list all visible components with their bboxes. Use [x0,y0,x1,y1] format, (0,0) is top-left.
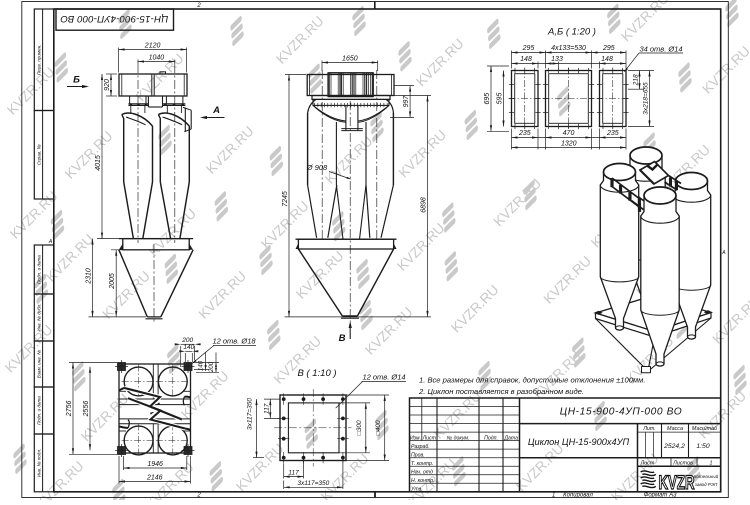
svg-text:□300: □300 [356,420,363,435]
svg-text:295: 295 [522,45,535,52]
svg-text:1. Все размеры для справок, до: 1. Все размеры для справок, допустимые о… [419,376,645,385]
svg-text:Котельный: Котельный [694,473,719,479]
svg-text:Разраб.: Разраб. [411,444,430,450]
svg-text:1320: 1320 [561,140,577,147]
svg-text:А: А [721,250,726,256]
svg-text:Н. контр.: Н. контр. [411,478,434,484]
svg-text:2756: 2756 [66,401,73,418]
svg-text:235: 235 [606,130,619,137]
svg-text:3x218=655: 3x218=655 [643,82,650,115]
svg-text:Подп.: Подп. [484,435,498,441]
svg-text:В ( 1:10 ): В ( 1:10 ) [297,368,336,379]
svg-text:140: 140 [183,344,194,351]
svg-text:920: 920 [104,79,111,91]
svg-text:2120: 2120 [144,42,161,49]
svg-text:Масштаб: Масштаб [692,426,718,432]
svg-text:12 отв. Ø18: 12 отв. Ø18 [212,337,256,346]
svg-text:117: 117 [288,469,299,476]
svg-text:200: 200 [208,361,215,373]
svg-text:Лит.: Лит. [642,426,656,432]
svg-text:Взам. инв. №: Взам. инв. № [36,350,41,378]
svg-text:А: А [212,105,220,116]
svg-text:117: 117 [263,403,270,414]
svg-text:Изм.: Изм. [410,435,421,441]
svg-text:ЦН-15-900-4УП-000 ВО: ЦН-15-900-4УП-000 ВО [560,407,683,418]
svg-text:В: В [339,333,346,344]
svg-text:KVZR: KVZR [659,472,695,494]
svg-text:2: 2 [196,493,201,499]
svg-text:34 отв. Ø14: 34 отв. Ø14 [639,45,682,54]
svg-text:Инв. № дубл.: Инв. № дубл. [36,303,41,331]
svg-text:148: 148 [601,56,613,63]
svg-text:1040: 1040 [149,54,165,61]
svg-text:12 отв. Ø14: 12 отв. Ø14 [362,373,405,382]
svg-text:Лист: Лист [640,460,655,466]
svg-text:133: 133 [551,56,563,63]
svg-text:Перв. примен.: Перв. примен. [36,44,41,75]
svg-text:148: 148 [520,56,532,63]
svg-text:6898: 6898 [421,197,428,213]
svg-text:Лист: Лист [422,435,437,441]
svg-text:235: 235 [518,130,531,137]
svg-text:595: 595 [497,93,504,105]
svg-text:1: 1 [710,460,713,466]
svg-text:2556: 2556 [83,401,90,418]
svg-text:1946: 1946 [147,461,163,468]
svg-text:1650: 1650 [342,55,358,62]
svg-text:4015: 4015 [95,155,102,171]
svg-text:А: А [48,239,53,245]
svg-text:2524,2: 2524,2 [663,443,685,450]
svg-text:Нач. отд: Нач. отд [411,469,433,475]
svg-text:Циклон ЦН-15-900х4УП: Циклон ЦН-15-900х4УП [528,437,630,447]
svg-text:3x117=350: 3x117=350 [297,480,329,487]
svg-text:2146: 2146 [146,474,163,481]
svg-text:2: 2 [196,3,201,9]
svg-text:997: 997 [403,95,410,108]
svg-text:Инв. № подл.: Инв. № подл. [36,449,41,478]
svg-text:470: 470 [563,130,575,137]
svg-text:№ докум.: № докум. [447,435,470,441]
svg-text:Подп. и дата: Подп. и дата [36,396,41,425]
svg-text:Б: Б [73,75,80,86]
svg-text:ЦН-15-900-4УП-000 ВО: ЦН-15-900-4УП-000 ВО [60,13,168,24]
svg-text:завод РЭП: завод РЭП [694,482,718,487]
svg-text:3x117=350: 3x117=350 [247,398,254,430]
svg-text:Формат А3: Формат А3 [644,493,677,499]
svg-text:Листов: Листов [672,460,693,466]
svg-text:7245: 7245 [282,191,289,207]
svg-text:Пров.: Пров. [411,452,425,458]
svg-text:□400: □400 [375,420,382,435]
svg-text:140: 140 [198,360,205,371]
svg-text:Т. контр.: Т. контр. [411,461,433,467]
svg-text:2310: 2310 [86,268,93,285]
svg-text:2. Циклон поставляется в разоб: 2. Циклон поставляется в разобранном вид… [418,387,584,396]
svg-text:2005: 2005 [109,273,116,290]
svg-text:1:50: 1:50 [696,443,709,450]
svg-text:Масса: Масса [667,426,683,432]
svg-text:Подп. и дата: Подп. и дата [36,255,41,284]
svg-text:Утв.: Утв. [411,487,423,493]
svg-text:4x133=530: 4x133=530 [551,45,586,52]
svg-text:А,Б ( 1:20 ): А,Б ( 1:20 ) [547,27,596,38]
svg-text:Справ. №: Справ. № [36,144,41,165]
svg-text:1: 1 [552,492,555,498]
svg-text:218: 218 [633,74,640,86]
svg-text:695: 695 [484,93,491,105]
svg-text:Дата: Дата [503,435,518,441]
svg-text:Ø 908: Ø 908 [306,163,328,172]
svg-text:295: 295 [602,45,615,52]
svg-text:Копировал: Копировал [563,492,593,498]
svg-text:200: 200 [181,337,193,344]
